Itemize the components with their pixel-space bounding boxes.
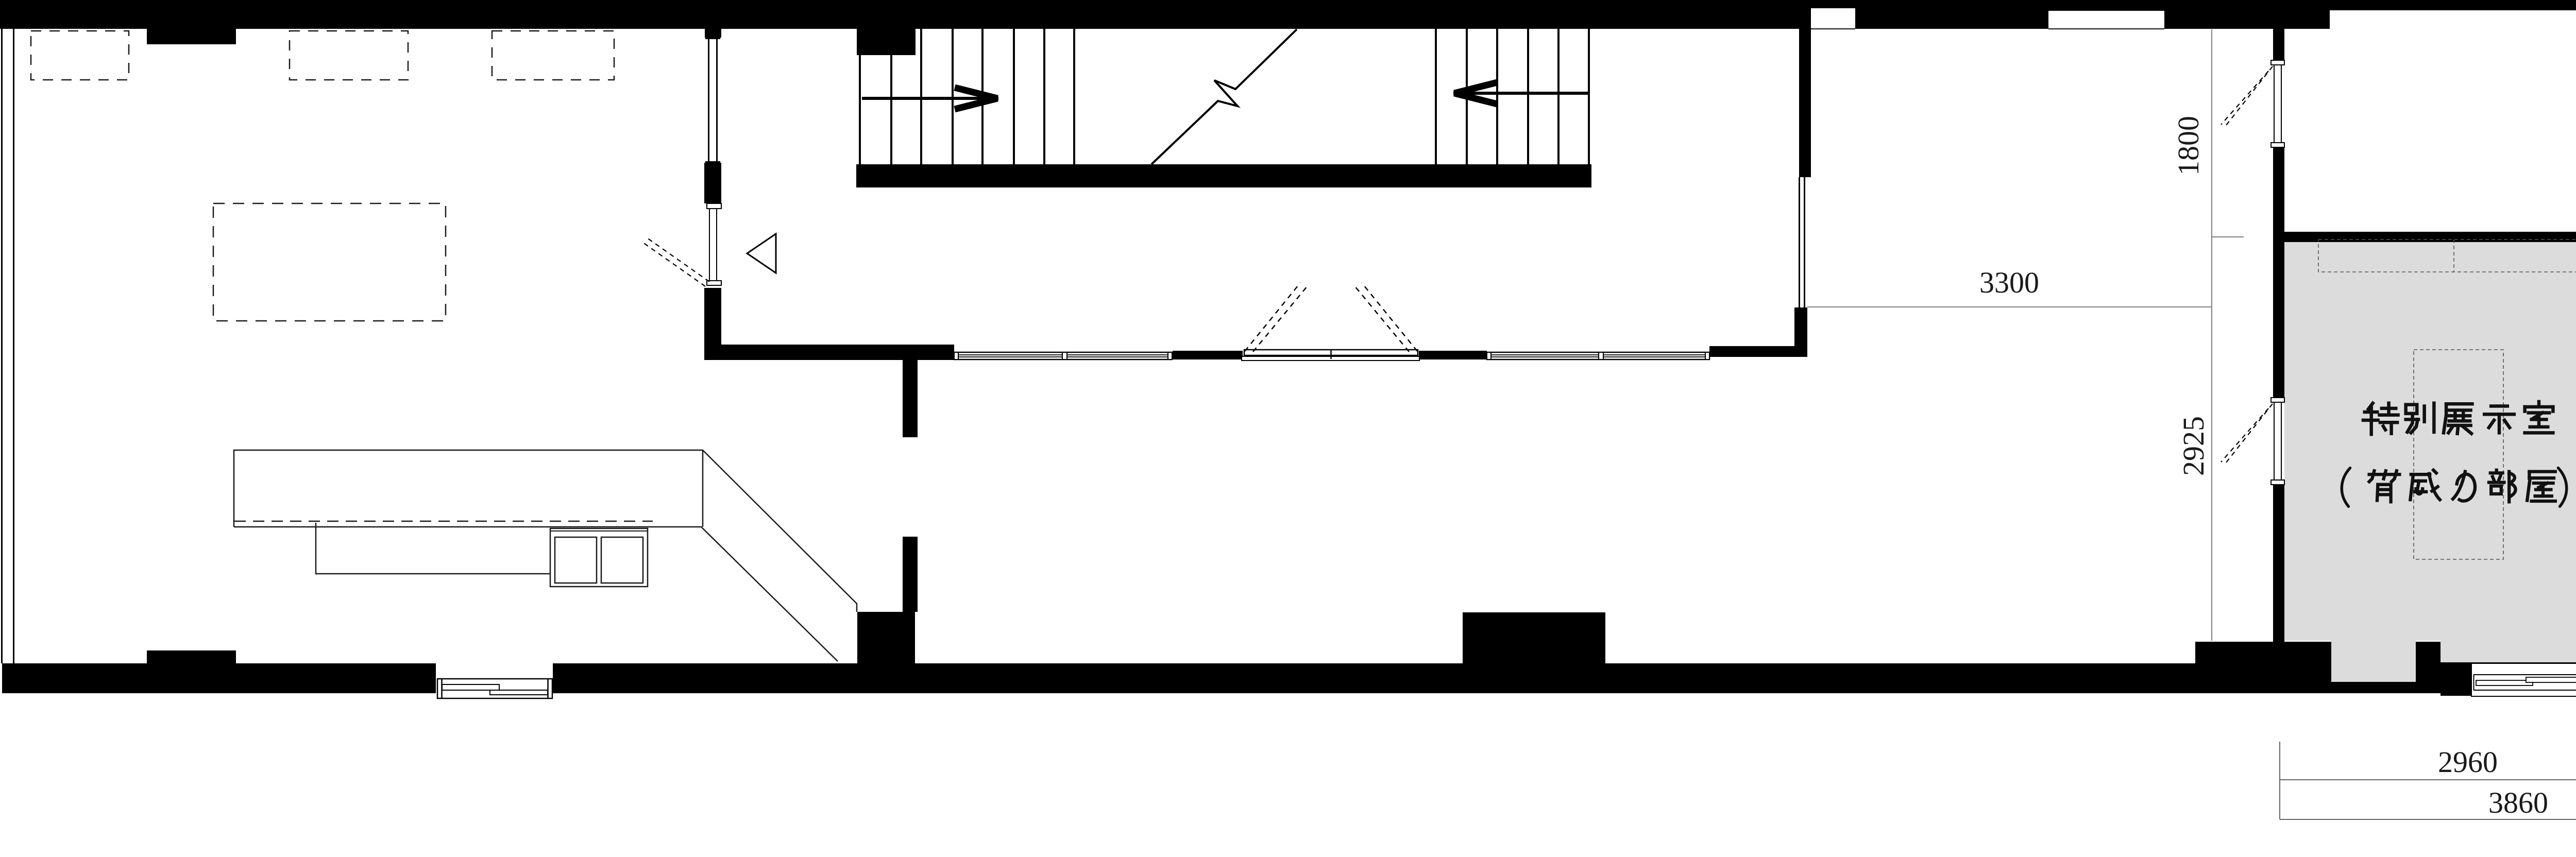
svg-text:3300: 3300 [1979,266,2039,299]
svg-text:2960: 2960 [2438,745,2498,779]
svg-text:2925: 2925 [2177,416,2210,476]
svg-text:1800: 1800 [2172,116,2205,176]
svg-text:3860: 3860 [2488,786,2548,819]
